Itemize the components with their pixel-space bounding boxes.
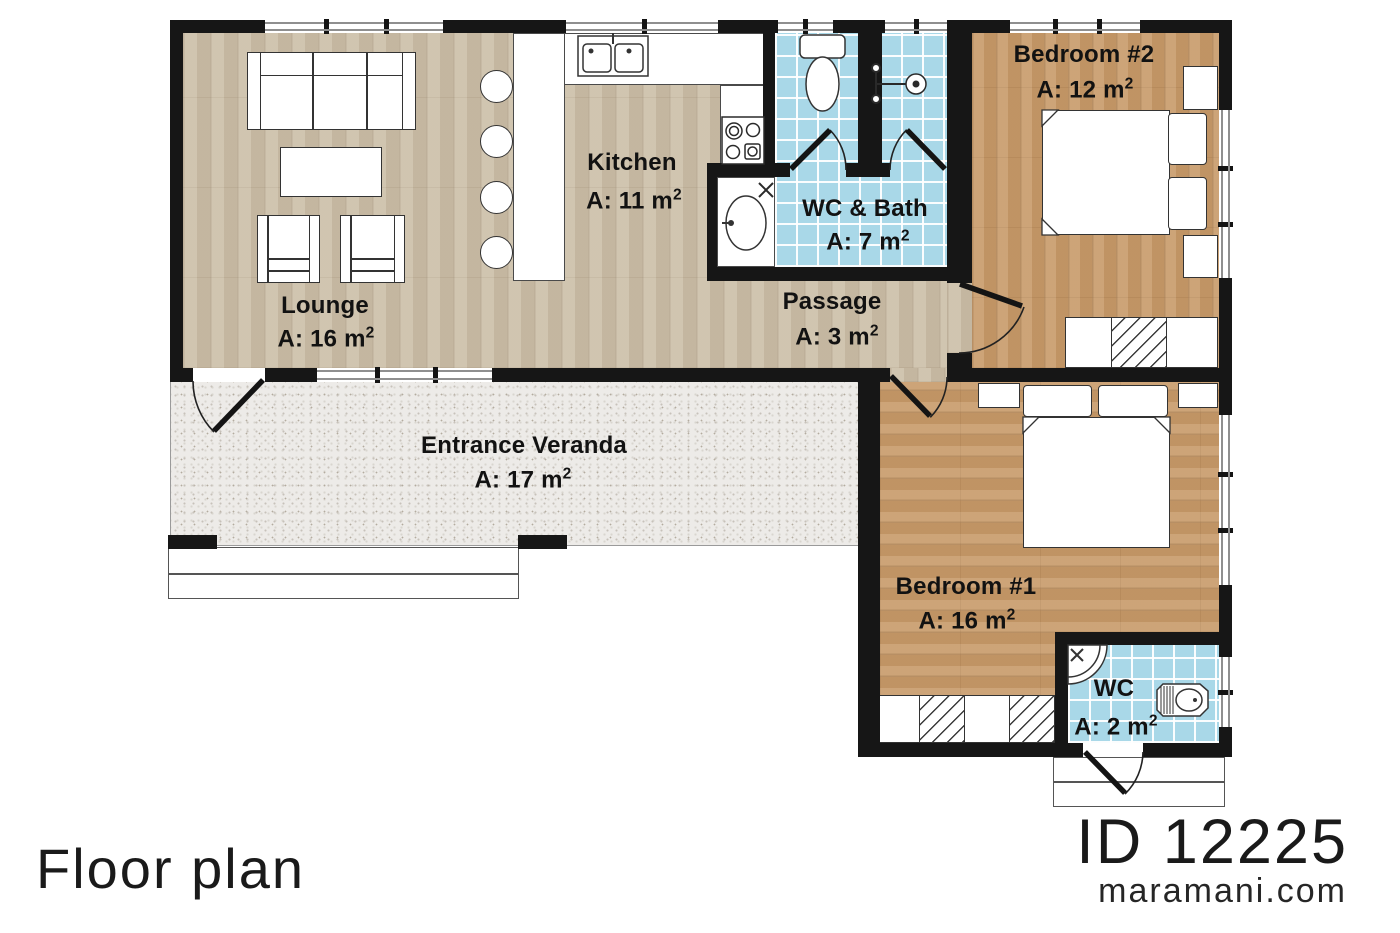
veranda-area-label: A: 17 m2: [475, 466, 572, 495]
bedroom2-area-sup: 2: [1125, 76, 1134, 93]
nightstand: [1183, 235, 1218, 278]
window-mullion: [914, 19, 919, 34]
website-text: maramani.com: [1098, 872, 1347, 911]
pillow: [1168, 113, 1207, 165]
window-lounge-veranda: [317, 368, 492, 382]
wardrobe-section-hatched: [1009, 696, 1054, 742]
window-mullion: [375, 367, 380, 383]
sofa-cushion-divider: [312, 53, 314, 129]
window-bath-compartment: [885, 20, 947, 33]
wc-area-label: A: 2 m2: [1074, 713, 1157, 742]
window-mullion: [1218, 166, 1233, 171]
plan-id-text: ID 12225: [1076, 806, 1348, 878]
veranda-name-label: Entrance Veranda: [421, 432, 627, 460]
wall-bedroom1-left: [858, 368, 880, 757]
step-edge: [1054, 781, 1224, 783]
washbasin-nook: [717, 177, 775, 267]
door-opening-bedroom1: [890, 368, 947, 382]
lounge-name-label: Lounge: [281, 292, 369, 320]
armchair-back-line: [350, 270, 395, 272]
kitchen-area-label: A: 11 m2: [586, 187, 682, 216]
door-opening-veranda: [193, 368, 265, 382]
wall-bath-left: [763, 20, 775, 163]
veranda-post: [518, 535, 567, 549]
kitchen-counter-stove: [720, 85, 767, 165]
bed-bedroom1: [1023, 417, 1170, 548]
wall-lounge-veranda: [170, 368, 890, 382]
wall-bath-divider: [858, 20, 882, 163]
window-mullion: [433, 367, 438, 383]
pillow: [1023, 385, 1092, 417]
sofa-armrest-right: [402, 53, 415, 129]
armchair-armrest: [267, 216, 269, 282]
wall-exterior-left: [170, 33, 183, 382]
wc-bath-area-sup: 2: [901, 228, 910, 245]
armchair-armrest: [309, 216, 311, 282]
coffee-table: [280, 147, 382, 197]
step-edge: [169, 573, 518, 575]
armchair-armrest: [394, 216, 396, 282]
lounge-area-text: A: 16 m: [278, 326, 366, 353]
wc-entry-steps: [1053, 757, 1225, 807]
wc-bath-name-label: WC & Bath: [802, 195, 928, 223]
wall-bedroom2-left: [947, 20, 972, 283]
floor-plan-canvas: Lounge A: 16 m2 Kitchen A: 11 m2 WC & Ba…: [0, 0, 1400, 933]
veranda-post: [168, 535, 217, 549]
wall-exterior-bottom: [858, 743, 1232, 757]
window-lounge-top: [265, 20, 443, 33]
wall-nook-top: [717, 163, 790, 177]
nightstand: [978, 383, 1020, 408]
window-bedroom2-top: [1010, 20, 1140, 33]
wall-wc-top: [1055, 632, 1219, 645]
door-opening-wc-exit: [1083, 743, 1143, 757]
sofa: [247, 52, 416, 130]
sofa-armrest-left: [248, 53, 261, 129]
lounge-area-sup: 2: [366, 325, 375, 342]
veranda-area-text: A: 17 m: [475, 467, 563, 494]
window-mullion: [1053, 19, 1058, 34]
passage-area-sup: 2: [870, 323, 879, 340]
window-wc-right: [1219, 657, 1232, 727]
bedroom1-area-sup: 2: [1007, 607, 1016, 624]
window-mullion: [803, 19, 808, 34]
window-mullion: [1097, 19, 1102, 34]
bar-stool: [480, 125, 513, 158]
bed-bedroom2: [1042, 110, 1170, 235]
bedroom1-area-label: A: 16 m2: [919, 607, 1016, 636]
wardrobe-bedroom2: [1065, 317, 1218, 368]
armchair: [340, 215, 405, 283]
bedroom2-area-label: A: 12 m2: [1037, 76, 1134, 105]
wardrobe-section-hatched: [1111, 318, 1166, 367]
kitchen-counter-bar: [513, 33, 565, 281]
wc-name-label: WC: [1094, 675, 1134, 703]
armchair-armrest: [350, 216, 352, 282]
kitchen-area-sup: 2: [673, 187, 682, 204]
wc-area-sup: 2: [1149, 713, 1158, 730]
wall-wc-left: [1055, 632, 1068, 743]
bar-stool: [480, 181, 513, 214]
pillow: [1168, 177, 1207, 230]
wc-bath-area-text: A: 7 m: [826, 229, 901, 256]
nightstand: [1183, 66, 1218, 110]
wardrobe-section: [964, 696, 1009, 742]
bar-stool: [480, 236, 513, 269]
window-mullion: [1218, 528, 1233, 533]
window-mullion: [1218, 690, 1233, 695]
sofa-back: [260, 53, 403, 76]
window-kitchen-top: [566, 20, 718, 33]
window-bedroom2-right: [1219, 110, 1232, 278]
floor-entrance-veranda: [170, 382, 859, 546]
kitchen-name-label: Kitchen: [587, 149, 676, 177]
veranda-steps: [168, 547, 519, 599]
lounge-area-label: A: 16 m2: [278, 325, 375, 354]
armchair: [257, 215, 320, 283]
window-mullion: [1218, 472, 1233, 477]
floor-plan-title: Floor plan: [36, 836, 305, 901]
window-mullion: [384, 19, 389, 34]
passage-area-label: A: 3 m2: [795, 323, 878, 352]
bedroom2-name-label: Bedroom #2: [1014, 41, 1155, 69]
window-wc-compartment: [778, 20, 833, 33]
bar-stool: [480, 70, 513, 103]
wall-bath-bottom: [707, 267, 972, 281]
passage-area-text: A: 3 m: [795, 324, 870, 351]
bedroom1-name-label: Bedroom #1: [896, 573, 1037, 601]
window-bedroom1-right: [1219, 415, 1232, 585]
wardrobe-section: [1166, 318, 1219, 367]
kitchen-area-text: A: 11 m: [586, 188, 673, 215]
bedroom2-area-text: A: 12 m: [1037, 77, 1125, 104]
bedroom1-area-text: A: 16 m: [919, 608, 1007, 635]
window-mullion: [324, 19, 329, 34]
wall-bedroom1-bedroom2: [947, 368, 1232, 382]
pillow: [1098, 385, 1168, 417]
door-opening-bedroom2: [947, 283, 972, 353]
wc-area-text: A: 2 m: [1074, 714, 1149, 741]
wardrobe-section-hatched: [919, 696, 964, 742]
sofa-cushion-divider: [366, 53, 368, 129]
window-mullion: [1218, 222, 1233, 227]
wc-bath-area-label: A: 7 m2: [826, 228, 909, 257]
armchair-back-line: [350, 258, 395, 260]
nightstand: [1178, 383, 1218, 408]
wall-bath-door-post: [846, 163, 890, 177]
armchair-back-line: [267, 270, 310, 272]
wardrobe-bedroom1: [868, 695, 1060, 743]
veranda-area-sup: 2: [563, 466, 572, 483]
wall-nook-left: [707, 163, 717, 281]
passage-name-label: Passage: [783, 288, 882, 316]
window-mullion: [642, 19, 647, 34]
armchair-back-line: [267, 258, 310, 260]
